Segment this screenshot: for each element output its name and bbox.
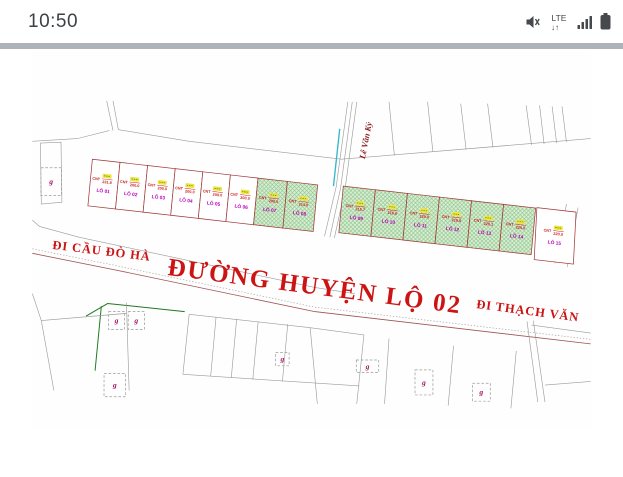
plot-8: CNT214.0LÔ 08	[283, 181, 318, 231]
grave-symbol: g	[365, 362, 370, 371]
lte-icon: LTE ↓↑	[548, 13, 570, 31]
lte-label: LTE	[552, 13, 567, 23]
status-icons: LTE ↓↑	[525, 13, 611, 31]
plot-13: CNT220.1LÔ 13	[467, 201, 504, 251]
clock: 10:50	[28, 11, 78, 33]
grave-symbol: g	[133, 316, 138, 325]
plot-1: CNT231.9LÔ 01	[88, 159, 120, 209]
plot-14: CNT220.0LÔ 14	[499, 204, 536, 254]
lte-arrows: ↓↑	[551, 23, 559, 31]
cadastral-map-image[interactable]: CNT231.9LÔ 01CNT200.0LÔ 02CNT200.0LÔ 03C…	[0, 49, 623, 472]
signal-icon	[577, 15, 593, 29]
grave-symbol: g	[112, 381, 117, 390]
status-bar: 10:50 LTE ↓↑	[0, 0, 623, 43]
plot-10: CNT216.6LÔ 10	[371, 190, 408, 240]
plot-7: CNT200.0LÔ 07	[254, 178, 288, 228]
grave-symbol: g	[421, 378, 426, 387]
grave-symbol: g	[478, 388, 483, 397]
grave-symbol: g	[279, 355, 284, 364]
mute-vibrate-icon	[525, 14, 541, 30]
plot-11: CNT220.0LÔ 11	[403, 193, 440, 243]
plot-4: CNT200.0LÔ 04	[171, 169, 203, 219]
plot-12: CNT219.9LÔ 12	[435, 197, 472, 247]
plot-3: CNT200.0LÔ 03	[143, 166, 175, 216]
plot-15: CNT220.0LÔ 15	[534, 208, 576, 264]
plot-5: CNT200.0LÔ 05	[198, 172, 230, 222]
plot-6: CNT200.0LÔ 06	[226, 175, 258, 225]
grave-symbol: g	[48, 177, 53, 186]
plot-9: CNT215.7LÔ 09	[339, 186, 376, 236]
grave-symbol: g	[114, 316, 119, 325]
plot-2: CNT200.0LÔ 02	[116, 162, 148, 212]
battery-icon	[600, 13, 611, 30]
